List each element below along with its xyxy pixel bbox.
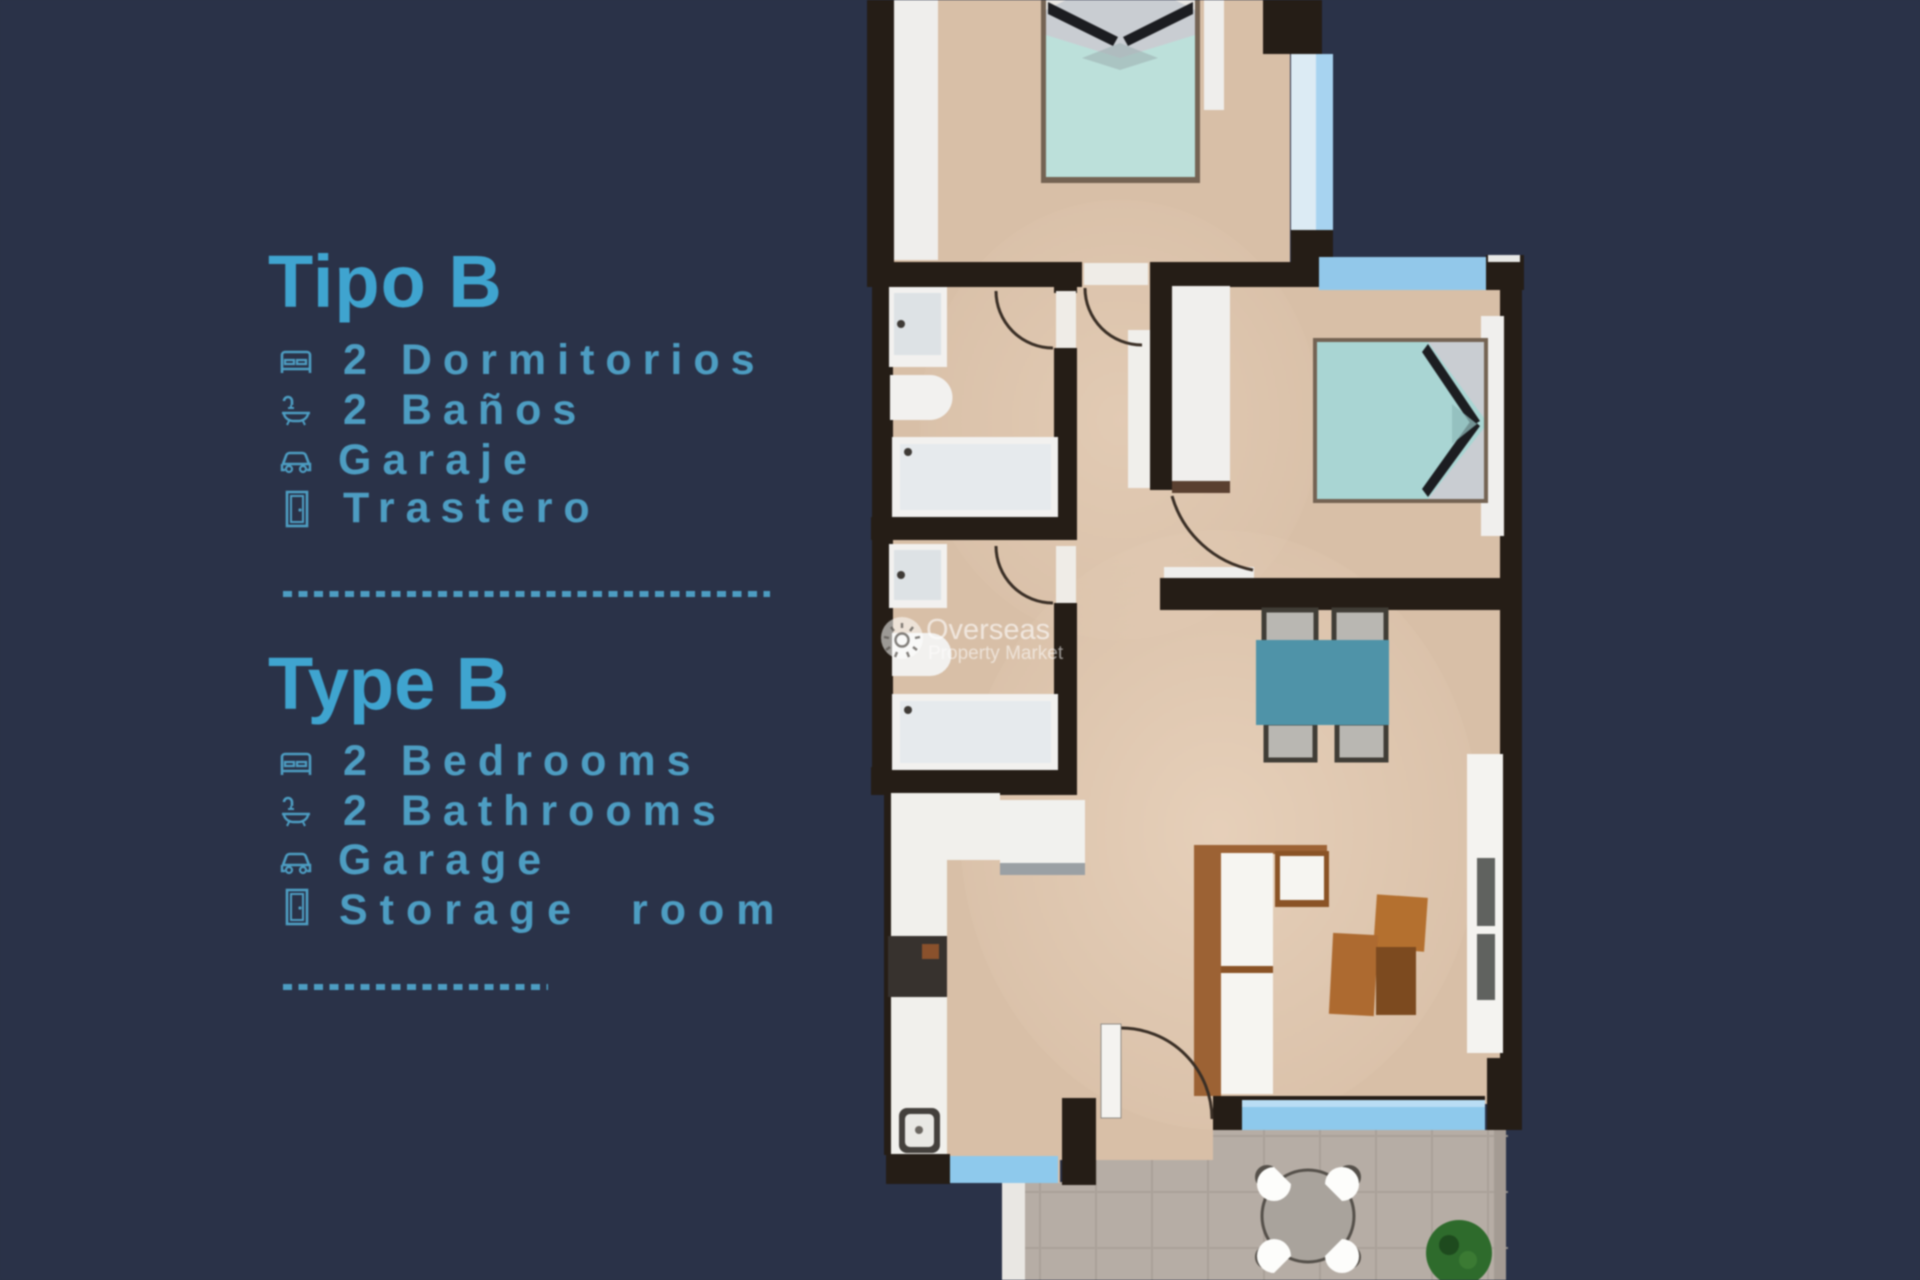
svg-text:Overseas: Overseas	[926, 614, 1050, 646]
svg-text:Property Market: Property Market	[928, 643, 1064, 664]
